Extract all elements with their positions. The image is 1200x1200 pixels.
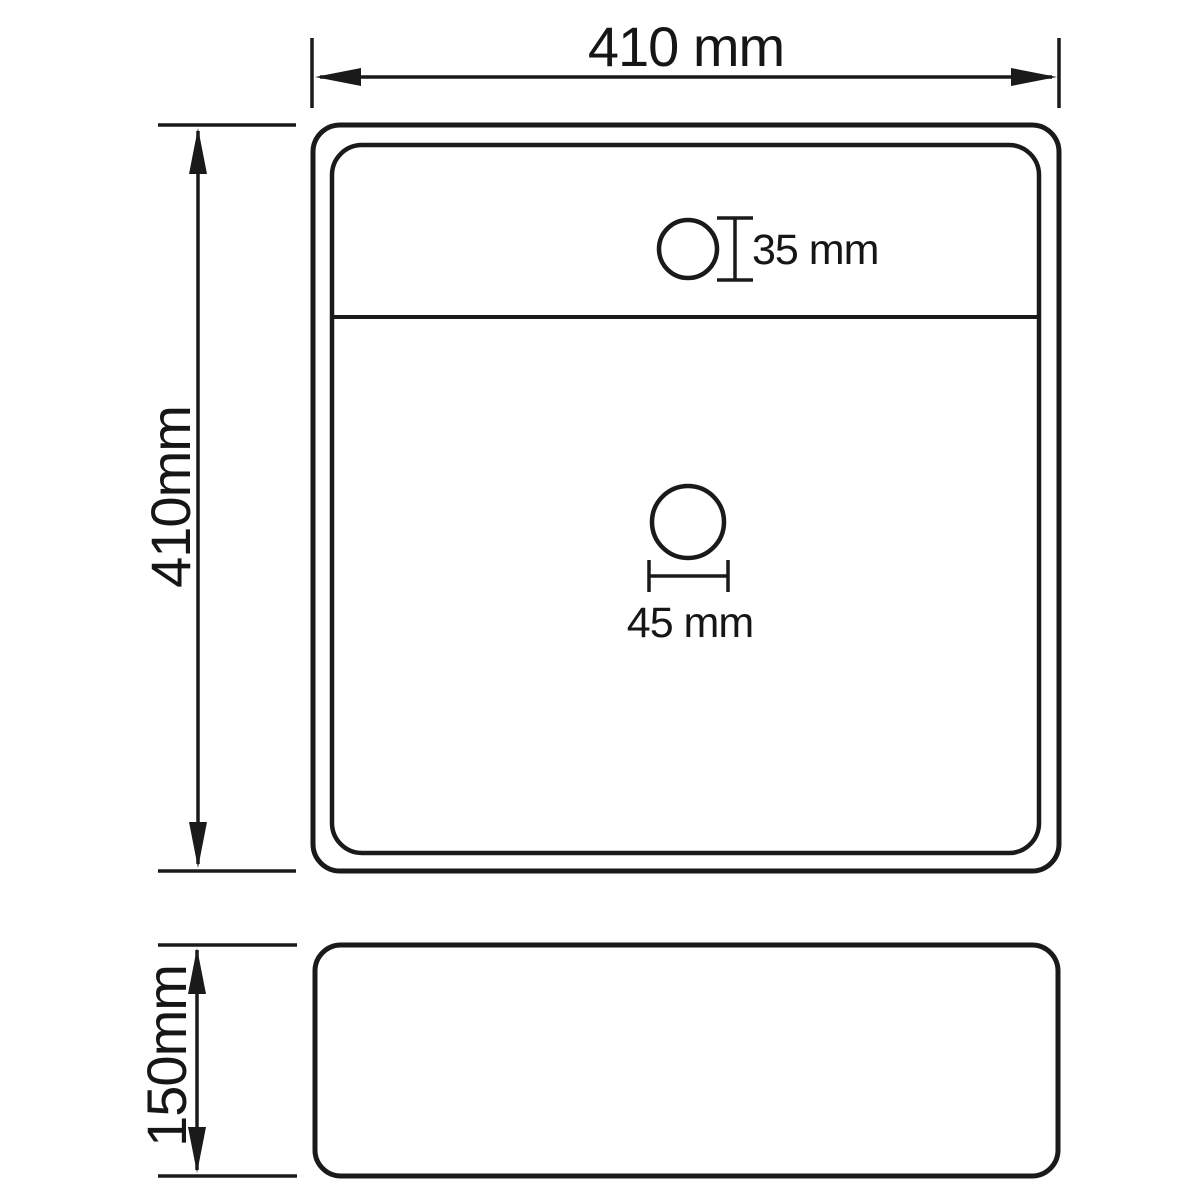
- faucet-hole-dimension-label: 35 mm: [752, 226, 878, 274]
- width-arrow-left: [315, 68, 361, 86]
- washbasin-technical-drawing: 35 mm 45 mm 410 mm: [0, 0, 1200, 1200]
- height-dimension-label: 410mm: [139, 406, 202, 588]
- drain-hole-dimension-label: 45 mm: [627, 599, 753, 647]
- basin-inner-rim: [332, 145, 1039, 853]
- depth-dimension-label: 150mm: [135, 965, 198, 1147]
- side-view-outline: [315, 945, 1058, 1176]
- height-arrow-top: [189, 128, 207, 174]
- drawing-canvas: 35 mm 45 mm 410 mm: [0, 0, 1200, 1200]
- depth-dimension: 150mm: [135, 945, 297, 1176]
- width-dimension-label: 410 mm: [588, 15, 784, 78]
- height-dimension: 410mm: [139, 125, 296, 871]
- width-arrow-right: [1011, 68, 1057, 86]
- drain-hole: [652, 486, 724, 558]
- top-view: [313, 125, 1059, 871]
- faucet-hole: [659, 220, 717, 278]
- height-arrow-bottom: [189, 822, 207, 868]
- width-dimension: 410 mm: [312, 15, 1059, 108]
- basin-outer-outline: [313, 125, 1059, 871]
- drain-hole-dimension: [649, 560, 728, 592]
- faucet-hole-dimension: [717, 218, 753, 280]
